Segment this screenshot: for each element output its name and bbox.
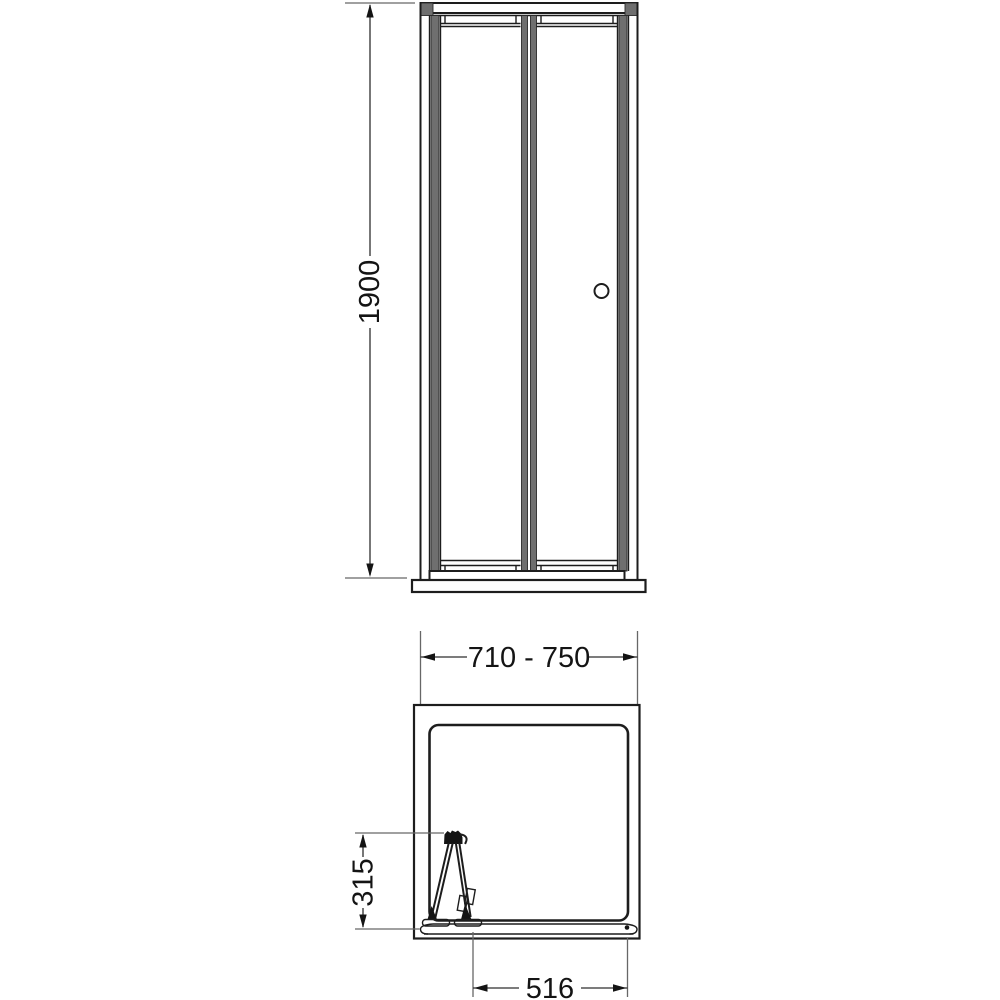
center-hinge-stile-left [522,16,528,572]
bifold-panels [441,16,618,572]
plan-view: 710 - 750 [348,631,640,1000]
right-jamb-profile [619,16,627,572]
technical-drawing-canvas: 1900 [0,0,1000,1000]
arrowhead-down [359,915,366,929]
shower-tray-base [412,580,646,592]
projection-dimension-label: 315 [348,858,380,906]
door-knob-handle [595,284,609,298]
bottom-track-and-tray [412,571,646,592]
left-jamb-profile [431,16,439,572]
arrowhead-left [422,653,436,660]
front-elevation-view: 1900 [345,3,646,592]
tray-inner-outline [430,725,629,921]
header-bar [421,3,638,13]
arrowhead-down [366,564,373,578]
arrowhead-right [613,984,627,991]
width-dimension-label: 710 - 750 [468,642,591,674]
shower-door-dimension-diagram: 1900 [0,0,1000,1000]
width-dimension: 710 - 750 [421,631,638,704]
height-dimension-label: 1900 [354,260,386,325]
center-hinge-stile-right [531,16,537,572]
opening-dimension: 516 [473,932,628,1000]
arrowhead-up [359,834,366,848]
header-cap-left [421,3,434,16]
arrowhead-left [474,984,488,991]
arrowhead-right [623,653,637,660]
enclosure-plan [414,705,640,939]
fold-hinge-knuckle [444,831,463,845]
bottom-track-bar [430,571,625,580]
opening-dimension-label: 516 [526,973,574,1000]
track-roller-dot [625,925,630,930]
arrowhead-up [366,4,373,18]
height-dimension: 1900 [345,3,415,578]
header-cap-right [625,3,638,16]
